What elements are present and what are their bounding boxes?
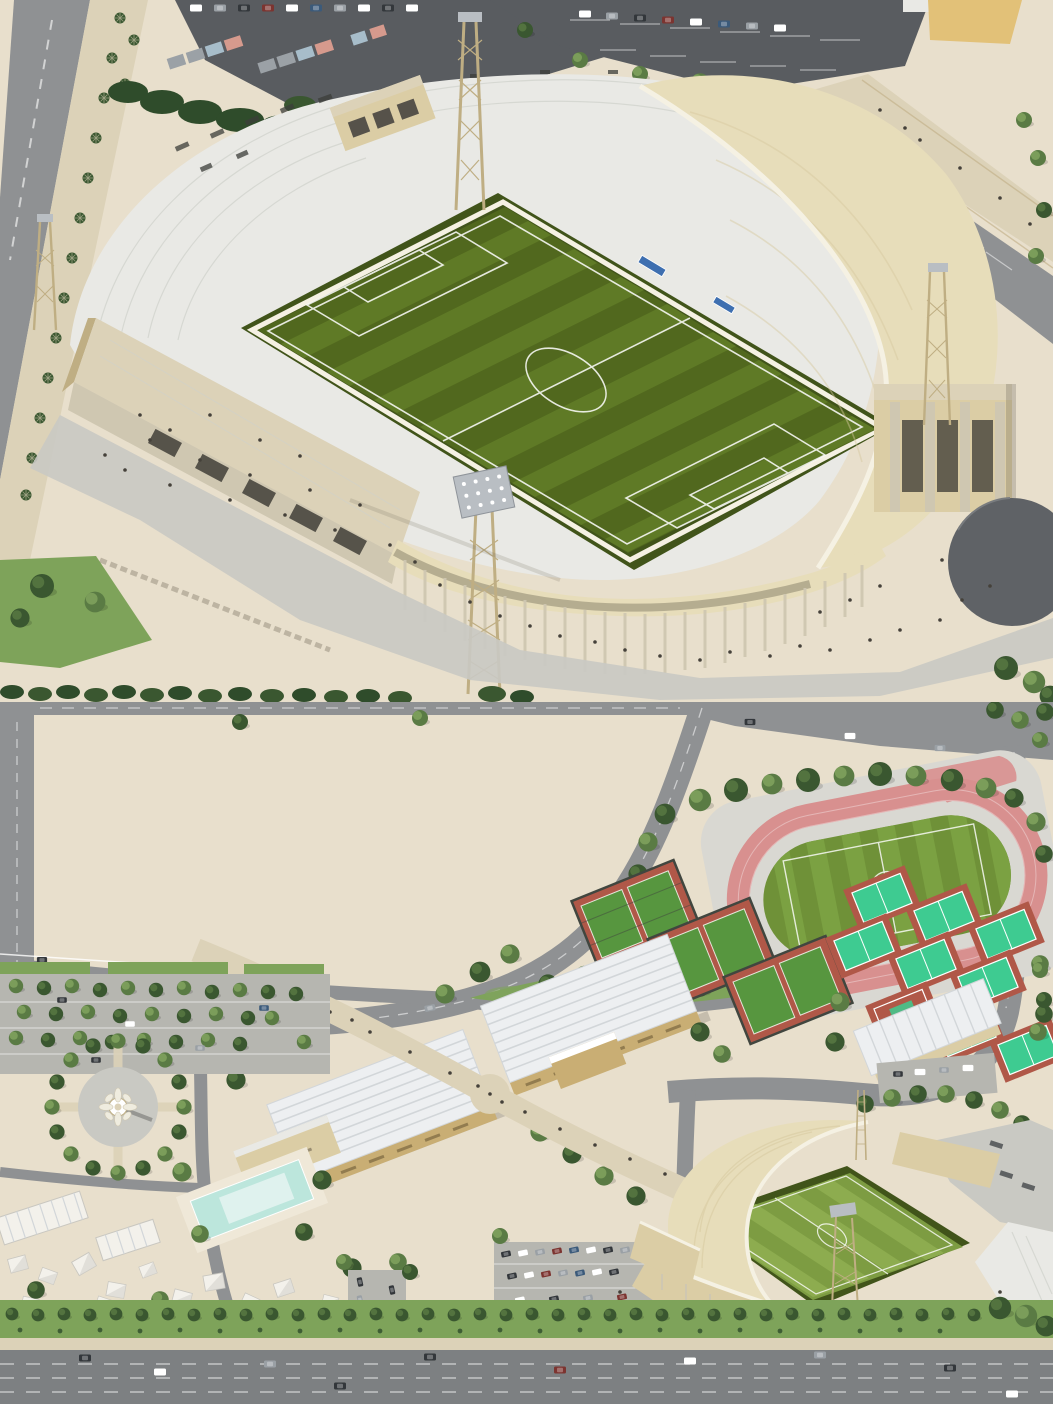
highway: [0, 1350, 1053, 1404]
right-pavilion: [874, 384, 1016, 512]
sidewalk: [0, 1338, 1053, 1350]
sand-lot: [928, 0, 1022, 44]
screenshot-root: Aerial 3D render of a stadium: dark-gree…: [0, 0, 1053, 1404]
top-render: [0, 0, 1053, 702]
boulevard-verge: [0, 1297, 1053, 1338]
bottom-render: [0, 702, 1053, 1404]
